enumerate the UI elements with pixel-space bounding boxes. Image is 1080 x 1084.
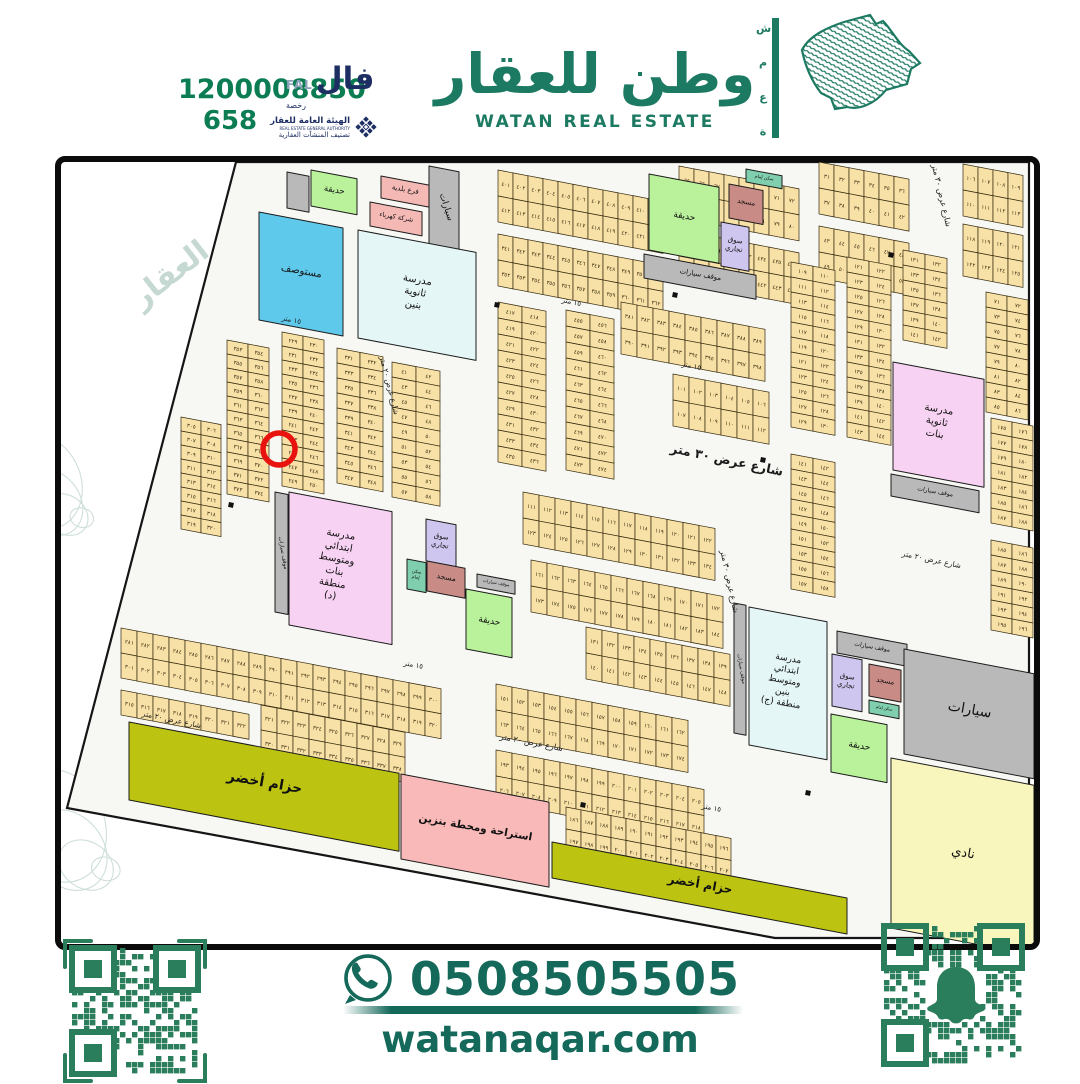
market-center: سوقتجاري	[426, 519, 456, 567]
parcel-number: ٥٣	[401, 459, 408, 466]
contour-watermark	[61, 423, 96, 548]
parcel-number: ٥٢	[425, 449, 432, 456]
school-girls-high: مدرسةثانويةبنات	[893, 362, 984, 487]
parcel-block-R7: ١٨٥١٨٦١٨٧١٨٨١٨٩١٩٠١٩١١٩٢١٩٣١٩٤١٩٥١٩٦	[991, 540, 1033, 638]
qr-code[interactable]	[62, 938, 208, 1084]
parcel-number: ٤٤	[838, 241, 845, 248]
snapchat-qr-code[interactable]	[880, 922, 1032, 1074]
parcel-block-V0: ٣٠٥٣٠٦٣٠٧٣٠٨٣٠٩٣١٠٣١١٣١٢٣١٣٣١٤٣١٥٣١٦٣١٧٣…	[181, 417, 221, 537]
subdivision-map-panel: العقار٣٠٥٣٠٦٣٠٧٣٠٨٣٠٩٣١٠٣١١٣١٢٣١٣٣١٤٣١٥٣…	[55, 156, 1040, 950]
utility-marker	[494, 302, 500, 308]
parcel-number: ٧٣	[993, 314, 1000, 321]
whatsapp-icon	[340, 951, 396, 1007]
parcel-number: ٥٠	[838, 267, 845, 274]
brand-side-letter: م	[756, 56, 770, 69]
brand-side-word: شمعة	[756, 22, 770, 138]
snapchat-ghost-icon	[927, 967, 985, 1023]
parcel-number: ٤١	[883, 211, 890, 218]
mosque-top-center: مسجد	[729, 184, 763, 225]
parcel-number: ٣١	[823, 174, 830, 181]
parcel-block-C2: ٤٥٥٤٥٦٤٥٧٤٥٨٤٥٩٤٦٠٤٦١٤٦٢٤٦٣٤٦٤٤٦٥٤٦٦٤٦٧٤…	[566, 310, 614, 479]
parcel-number: ٧٦	[1014, 333, 1021, 340]
parcel-number: ٤٨	[425, 419, 432, 426]
utility-marker	[580, 802, 586, 808]
parcel-block-R5: ١٧٥١٧٦١٧٧١٧٨١٧٩١٨٠١٨١١٨٢١٨٣١٨٤١٨٥١٨٦١٨٧١…	[991, 418, 1033, 531]
parcel-number: ٤٤	[425, 389, 432, 396]
parcel-number: ٨٠	[1014, 363, 1021, 370]
parcel-block-R6: ١٤١١٤٢١٤٣١٤٤١٤٥١٤٦١٤٧١٤٨١٤٩١٥٠١٥١١٥٢١٥٣١…	[791, 454, 835, 597]
parcel-number: ٨٦	[1014, 408, 1021, 415]
parcel-number: ٧٧	[993, 344, 1000, 351]
parcel-number: ٣٧	[823, 200, 830, 207]
parcel-number: ٨٠	[788, 224, 795, 231]
parcel-number: ٥١	[401, 444, 408, 451]
parcel-block-R3: ١٣١١٣٢١٣٣١٣٤١٣٥١٣٦١٣٧١٣٨١٣٩١٤٠١٤١١٤٢	[903, 250, 947, 348]
parcel-number: ٤٥	[853, 244, 860, 251]
parcel-number: ٧٨	[1014, 348, 1021, 355]
parcel-block-V1: ٣٥٣٣٥٤٣٥٥٣٥٦٣٥٧٣٥٨٣٥٩٣٦٠٣٦١٣٦٢٣٦٣٣٦٤٣٦٥٣…	[227, 340, 269, 502]
parcel-number: ٤٩	[401, 429, 408, 436]
parcel-number: ٣٦	[898, 188, 905, 195]
parcel-number: ٨٥	[993, 404, 1000, 411]
parcel-number: ٧٥	[993, 329, 1000, 336]
parcel-number: ٥٠	[425, 434, 432, 441]
market-top-center-label: سوقتجاري	[725, 235, 745, 254]
market-top-center: سوقتجاري	[721, 222, 749, 271]
parcel-number: ٤٣	[401, 384, 408, 391]
parking-strip-top-left: سيارات	[429, 166, 459, 250]
parcel-number: ٥٧	[401, 489, 408, 496]
school-boys-high: مدرسةثانويةبنين	[358, 230, 476, 360]
parcel-number: ٣٨	[838, 203, 845, 210]
park-district-j: حديقة	[831, 714, 887, 783]
park-center: حديقة	[466, 589, 512, 658]
parcel-block-C1: ٤١٧٤١٨٤١٩٤٢٠٤٢١٤٢٢٤٢٣٤٢٤٤٢٥٤٢٦٤٢٧٤٢٨٤٢٩٤…	[498, 302, 546, 471]
park-top-center: حديقة	[649, 174, 719, 263]
parcel-number: ٨٤	[1014, 393, 1021, 400]
whatsapp-phone-number[interactable]: 0508505505	[410, 952, 740, 1006]
fal-arabic: فال	[316, 64, 375, 95]
authority-diamond-icon	[354, 114, 378, 140]
license-number: 658	[200, 106, 260, 136]
parcel-number: ٤٠	[868, 208, 875, 215]
parcel-number: ٧٢	[788, 198, 795, 205]
imam-house-center: سكنإمام	[407, 559, 426, 593]
market-center-label: سوقتجاري	[431, 531, 451, 550]
parcel-block-B4: ١١٨١١٩١٢٠١٢١١٢٢١٢٣١٢٤١٢٥	[963, 224, 1023, 287]
gray-box-top-left	[287, 172, 309, 212]
parcel-number: ٣٢	[838, 177, 845, 184]
brand-title-english: WATAN REAL ESTATE	[430, 112, 760, 132]
parcel-number: ٤١	[401, 369, 408, 376]
market-district-j: سوقتجاري	[832, 654, 862, 712]
parcel-number: ٤٣	[823, 238, 830, 245]
utility-marker	[805, 790, 811, 796]
parcel-block-R1: ١٠٩١١٠١١١١١٢١١٣١١٤١١٥١١٦١١٧١١٨١١٩١٢٠١٢١١…	[791, 262, 835, 435]
brand-side-letter: ش	[756, 22, 770, 35]
parcel-number: ٥٥	[401, 474, 408, 481]
utility-marker	[760, 457, 766, 463]
parcel-number: ٤٥	[401, 399, 408, 406]
parcel-number: ٤٦	[425, 404, 432, 411]
authority-name-en: REAL ESTATE GENERAL AUTHORITY	[270, 126, 350, 131]
parcel-number: ٧١	[993, 299, 1000, 306]
parcel-number: ٧٤	[1014, 318, 1021, 325]
school-district-j: مدرسةابتدائيومتوسطبنينمنطقة (ج)	[749, 607, 827, 760]
authority-name-ar: الهيئة العامة للعقار	[270, 116, 350, 126]
parcel-number: ٤٢	[898, 214, 905, 221]
parcel-number: ٣٥	[883, 185, 890, 192]
brand-title-arabic: وطن للعقار	[430, 42, 760, 106]
parcel-number: ٧٩	[773, 221, 780, 228]
parcel-block-V3: ٣٣١٣٣٢٣٣٣٣٣٤٣٣٥٣٣٦٣٣٧٣٣٨٣٣٩٣٤٠٣٤١٣٤٢٣٤٣٣…	[337, 348, 383, 492]
market-district-j-label: سوقتجاري	[837, 671, 857, 690]
brand-side-letter: ة	[756, 125, 770, 138]
parcel-block-A4: ١٠٦١٠٧١٠٨١٠٩١١٠١١١١١٢١١٣	[963, 164, 1023, 227]
parcel-number: ٧٢	[1014, 303, 1021, 310]
parcel-number: ٣٤	[868, 182, 875, 189]
brand-divider-bar	[772, 18, 779, 138]
sports-club: نادي	[891, 758, 1034, 944]
parcel-block-R2: ١٢١١٢٢١٢٣١٢٤١٢٥١٢٦١٢٧١٢٨١٢٩١٣٠١٣١١٣٢١٣٣١…	[847, 257, 891, 445]
parcel-number: ٤٦	[868, 246, 875, 253]
school-district-d: مدرسةابتدائيومتوسطبناتمنطقة(د)	[289, 492, 392, 645]
brand-side-letter: ع	[756, 91, 770, 104]
parcel-block-V4: ٤١٤٢٤٣٤٤٤٥٤٦٤٧٤٨٤٩٥٠٥١٥٢٥٣٥٤٥٥٥٦٥٧٥٨	[392, 362, 440, 506]
utility-marker	[672, 292, 678, 298]
parcel-block-R4: ٧١٧٢٧٣٧٤٧٥٧٦٧٧٧٨٧٩٨٠٨١٨٢٨٣٨٤٨٥٨٦	[986, 292, 1028, 420]
footer-divider	[343, 1006, 743, 1014]
saudi-map-shape	[802, 15, 920, 109]
utility-marker	[888, 252, 894, 258]
parcel-number: ٧١	[773, 195, 780, 202]
mosque-district-j: مسجد	[869, 664, 901, 702]
parking-strip-district-d: موقف سيارات	[275, 492, 288, 615]
parcel-number: ٤٢	[425, 374, 432, 381]
fal-license-logo: FAL رخصة فال	[286, 64, 401, 110]
real-estate-authority-logo: الهيئة العامة للعقار REAL ESTATE GENERAL…	[258, 106, 378, 148]
parcel-number: ٨٢	[1014, 378, 1021, 385]
saudi-arabia-map-logo	[788, 10, 928, 146]
parcel-number: ٣٣	[853, 180, 860, 187]
parcel-number: ٥٦	[425, 479, 432, 486]
fal-latin: FAL	[286, 78, 313, 92]
utility-marker	[228, 502, 234, 508]
parcel-block-V2: ٢٢٩٢٣٠٢٣١٢٣٢٢٣٣٢٣٤٢٣٥٢٣٦٢٣٧٢٣٨٢٣٩٢٤٠٢٤١٢…	[282, 332, 324, 494]
parcel-number: ٨١	[993, 374, 1000, 381]
parcel-number: ٥٨	[425, 494, 432, 501]
parking-strip-district-j: موقف سيارات	[734, 603, 747, 735]
parcel-number: ٨٣	[993, 389, 1000, 396]
parcel-number: ٤٧	[401, 414, 408, 421]
parcel-number: ٥٤	[425, 464, 432, 471]
website-link[interactable]: watanaqar.com	[340, 1018, 740, 1061]
parcel-number: ٧٩	[993, 359, 1000, 366]
subdivision-plat: العقار٣٠٥٣٠٦٣٠٧٣٠٨٣٠٩٣١٠٣١١٣١٢٣١٣٣١٤٣١٥٣…	[61, 162, 1034, 944]
parcel-number: ٣٩	[853, 206, 860, 213]
authority-classification: تصنيف المنشآت العقارية	[270, 131, 350, 139]
